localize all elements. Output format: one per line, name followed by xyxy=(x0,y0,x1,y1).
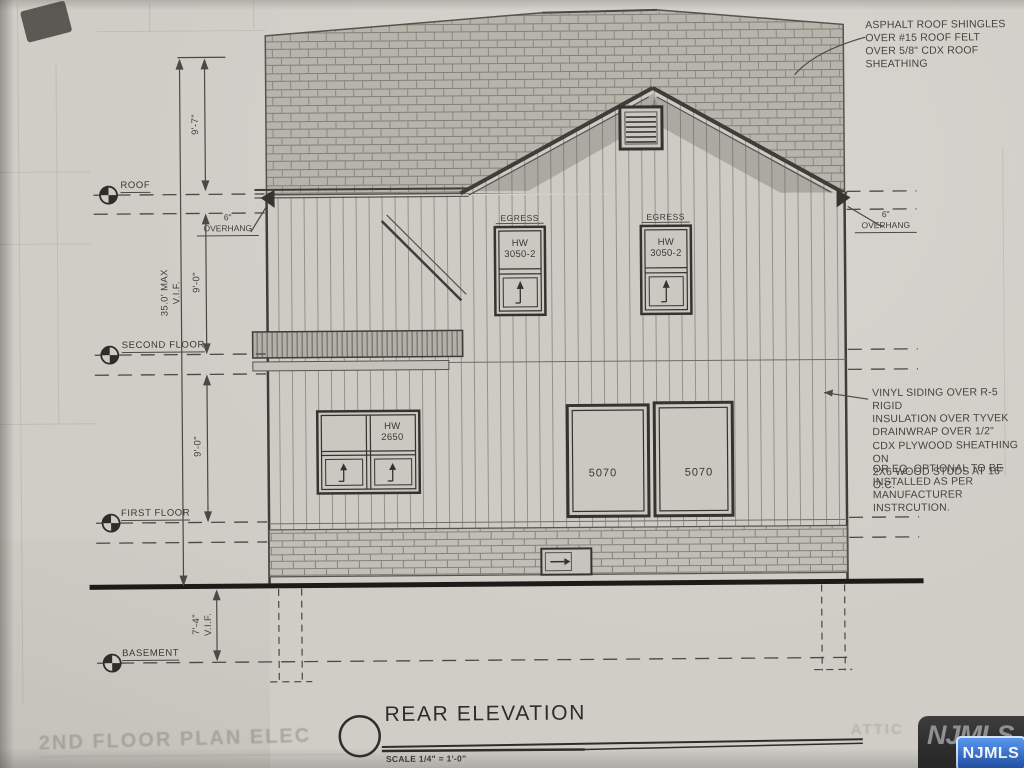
datum-marker-second xyxy=(101,347,118,364)
mls-watermark: NJMLS NJMLS xyxy=(918,716,1024,768)
foundation-band xyxy=(269,525,847,577)
egress-size-left: HW 3050-2 xyxy=(497,238,543,261)
siding-note-2: OR EQ. OPTIONAL TO BE INSTALLED AS PER M… xyxy=(873,462,1024,516)
drawing-sheet: ASPHALT ROOF SHINGLES OVER #15 ROOF FELT… xyxy=(0,0,1024,768)
level-line-second xyxy=(95,354,266,355)
level-line-first xyxy=(96,522,267,523)
datum-marker-basement xyxy=(104,655,121,672)
level-label-roof: ROOF xyxy=(120,180,150,193)
window-size-hw2650: HW 2650 xyxy=(370,421,414,444)
dim-attic-height: 9'-7" xyxy=(190,114,202,135)
dim-basement-depth: 7'-4" V.I.F. xyxy=(191,613,215,636)
roof-note: ASPHALT ROOF SHINGLES OVER #15 ROOF FELT… xyxy=(865,18,1021,72)
dim-roof-to-second: 9'-0" xyxy=(191,272,203,293)
mls-logo-badge: NJMLS xyxy=(956,736,1024,768)
attic-vent xyxy=(620,107,662,149)
bleed-text-attic: ATTIC xyxy=(851,721,904,738)
patio-door-right xyxy=(654,402,733,516)
dim-second-to-first: 9'-0" xyxy=(192,436,204,457)
siding-wall xyxy=(254,185,847,585)
door-size-right: 5070 xyxy=(685,466,714,478)
level-line-roof xyxy=(94,194,265,195)
patio-door-left xyxy=(567,405,649,517)
egress-size-right: HW 3050-2 xyxy=(643,237,689,260)
scanned-drawing-page: ASPHALT ROOF SHINGLES OVER #15 ROOF FELT… xyxy=(0,0,1024,768)
below-grade-foundation xyxy=(270,584,853,683)
level-label-basement: BASEMENT xyxy=(122,648,179,661)
detail-circle xyxy=(340,716,380,756)
level-line-basement xyxy=(97,657,852,663)
overhang-label-left: 6" OVERHANG xyxy=(197,212,259,237)
door-size-left: 5070 xyxy=(589,467,618,479)
egress-label-left: EGRESS xyxy=(496,213,544,224)
datum-markers xyxy=(100,187,121,672)
level-label-second-floor: SECOND FLOOR xyxy=(122,339,205,353)
datum-marker-first xyxy=(103,515,120,532)
dimension-lines xyxy=(175,57,230,661)
level-label-first-floor: FIRST FLOOR xyxy=(121,508,190,522)
drawing-scale: SCALE 1/4" = 1'-0" xyxy=(386,753,467,764)
overhang-label-right: 6" OVERHANG xyxy=(855,209,917,234)
ground-line xyxy=(90,581,924,588)
egress-label-right: EGRESS xyxy=(642,212,690,223)
deck-band xyxy=(253,330,463,371)
dim-overall-max: 35.0' MAX V.I.F. xyxy=(159,269,183,316)
drawing-title: REAR ELEVATION xyxy=(385,701,587,727)
datum-marker-roof xyxy=(100,187,117,204)
